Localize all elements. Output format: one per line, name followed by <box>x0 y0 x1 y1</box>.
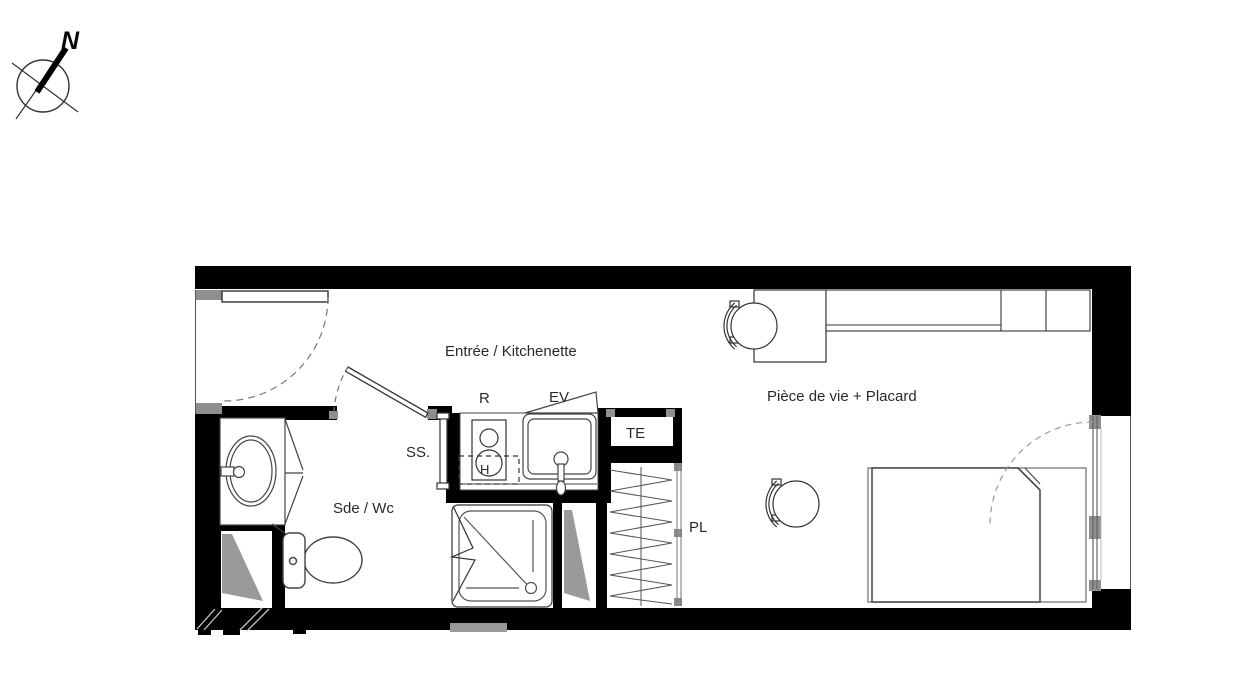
floorplan-page: N <box>0 0 1247 678</box>
bed-chair <box>766 479 819 527</box>
closet-hatch <box>610 464 681 606</box>
fixture-label-towel-dryer-ss: SS. <box>406 444 430 461</box>
washbasin <box>220 418 303 542</box>
bathroom-door <box>334 367 428 417</box>
room-label-sde-wc: Sde / Wc <box>333 500 394 517</box>
north-label: N <box>61 27 80 55</box>
towel-dryer <box>437 413 449 489</box>
floorplan-drawing: N <box>0 0 1247 678</box>
shower <box>452 505 552 607</box>
entry-door <box>222 291 328 401</box>
desk-chair <box>724 301 777 349</box>
fixture-label-refrigerator: R <box>479 390 490 407</box>
room-label-piece-de-vie: Pièce de vie + Placard <box>767 388 917 405</box>
technical-shaft-bathroom <box>222 534 263 601</box>
toilet <box>283 533 362 588</box>
sill-gray <box>450 623 507 632</box>
fixture-label-electrical-panel-te: TE <box>626 425 645 442</box>
technical-shaft-kitchen <box>564 510 590 601</box>
room-label-entree: Entrée / Kitchenette <box>445 343 577 360</box>
fixture-label-closet-pl: PL <box>689 519 707 536</box>
kitchen-sink <box>523 392 598 495</box>
bed <box>868 468 1086 602</box>
north-arrow-compass: N <box>12 27 80 119</box>
fixture-label-hood-h: H <box>480 461 489 478</box>
fixture-label-sink-ev: EV <box>549 389 569 406</box>
wardrobe <box>826 290 1090 331</box>
